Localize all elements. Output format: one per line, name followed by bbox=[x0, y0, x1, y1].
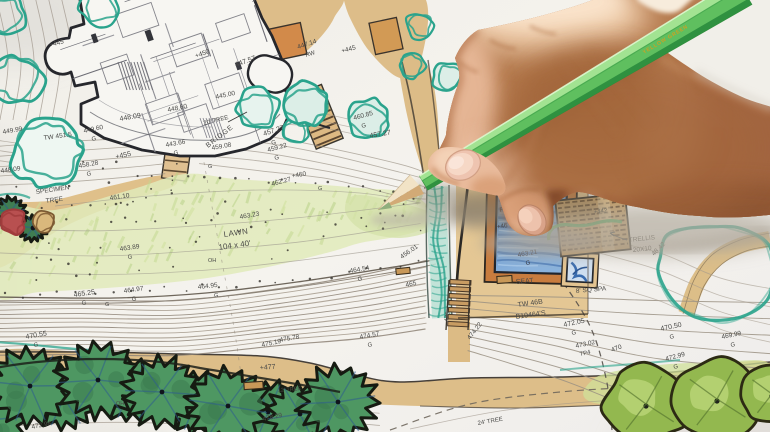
svg-text:G: G bbox=[318, 186, 322, 192]
svg-text:G: G bbox=[208, 164, 212, 170]
svg-text:OH: OH bbox=[116, 401, 124, 407]
svg-text:OH: OH bbox=[208, 258, 216, 264]
svg-text:+477: +477 bbox=[260, 364, 276, 372]
svg-text:G: G bbox=[105, 302, 109, 308]
svg-text:G: G bbox=[214, 293, 218, 299]
